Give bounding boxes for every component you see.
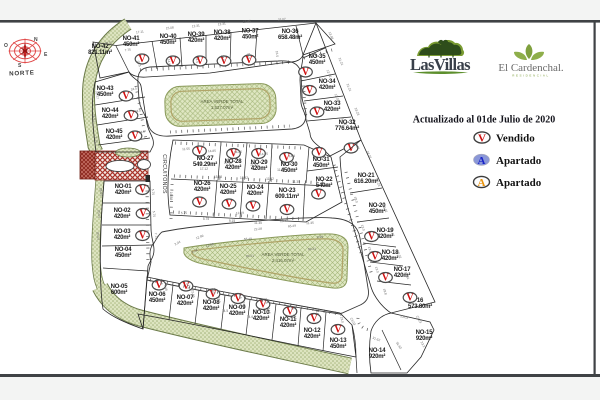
svg-text:14.5: 14.5: [167, 59, 172, 66]
svg-text:V: V: [196, 146, 204, 157]
svg-text:776.64m²: 776.64m²: [335, 125, 359, 132]
svg-text:450m²: 450m²: [313, 162, 330, 169]
svg-text:NORTE: NORTE: [9, 69, 35, 77]
svg-text:V: V: [315, 148, 323, 159]
svg-text:16.88: 16.88: [169, 192, 173, 201]
svg-text:24.57: 24.57: [92, 114, 97, 123]
svg-text:9.98: 9.98: [317, 235, 324, 239]
svg-text:821.11m²: 821.11m²: [88, 49, 112, 56]
svg-text:14.3: 14.3: [289, 154, 296, 158]
svg-text:A: A: [478, 177, 486, 189]
svg-text:540m²: 540m²: [316, 182, 333, 189]
svg-text:N: N: [34, 37, 38, 43]
svg-text:920m²: 920m²: [369, 353, 386, 360]
svg-text:V: V: [406, 293, 414, 304]
svg-text:420m²: 420m²: [220, 189, 237, 196]
svg-text:420m²: 420m²: [194, 186, 211, 193]
svg-text:450m²: 450m²: [369, 208, 386, 215]
svg-text:V: V: [122, 91, 130, 102]
svg-text:420m²: 420m²: [114, 234, 131, 241]
svg-text:450m²: 450m²: [242, 34, 259, 41]
svg-text:65.49: 65.49: [288, 224, 297, 229]
svg-text:V: V: [249, 201, 257, 212]
svg-text:V: V: [315, 189, 323, 200]
svg-text:2,416.07m²: 2,416.07m²: [272, 258, 295, 263]
svg-text:600m²: 600m²: [111, 289, 128, 296]
svg-text:15.92: 15.92: [240, 176, 248, 180]
svg-text:12.99: 12.99: [236, 211, 244, 216]
svg-text:V: V: [196, 197, 204, 208]
svg-text:Apartado: Apartado: [496, 155, 542, 167]
svg-text:11.35: 11.35: [306, 221, 314, 225]
svg-text:420m²: 420m²: [382, 255, 399, 262]
svg-text:11.35: 11.35: [277, 168, 285, 172]
svg-text:420m²: 420m²: [114, 213, 131, 220]
svg-text:V: V: [371, 252, 379, 263]
svg-text:14.85: 14.85: [208, 149, 216, 153]
svg-text:17.12: 17.12: [224, 161, 232, 165]
svg-text:22.28: 22.28: [254, 227, 263, 232]
svg-text:420m²: 420m²: [229, 310, 246, 317]
svg-text:658.48m²: 658.48m²: [278, 34, 302, 41]
svg-text:El Cardenchal.: El Cardenchal.: [498, 62, 564, 74]
svg-text:V: V: [306, 86, 314, 97]
svg-text:420m²: 420m²: [225, 164, 242, 171]
svg-text:AREA VERDE TOTAL: AREA VERDE TOTAL: [201, 99, 245, 104]
svg-text:V: V: [368, 232, 376, 243]
svg-text:Actualizado al 01de Julio de: Actualizado al 01de Julio de 2020: [413, 115, 556, 126]
svg-text:15.47: 15.47: [280, 219, 288, 223]
svg-text:7.75: 7.75: [154, 233, 159, 240]
svg-text:420m²: 420m²: [253, 315, 270, 322]
svg-text:16.5: 16.5: [275, 51, 280, 58]
svg-text:LasVillas: LasVillas: [410, 55, 471, 74]
svg-text:11.92: 11.92: [266, 177, 274, 181]
svg-text:420m²: 420m²: [203, 305, 220, 312]
svg-text:RESIDENCIAL: RESIDENCIAL: [512, 74, 550, 78]
svg-text:31.77: 31.77: [95, 91, 100, 100]
svg-text:420m²: 420m²: [304, 333, 321, 340]
svg-text:Vendido: Vendido: [496, 133, 535, 145]
svg-text:15.88: 15.88: [214, 175, 222, 179]
svg-text:17.12: 17.12: [200, 167, 208, 171]
svg-text:V: V: [310, 314, 318, 325]
svg-text:V: V: [225, 199, 233, 210]
svg-text:11.55: 11.55: [182, 147, 190, 151]
svg-text:14.85: 14.85: [260, 152, 268, 156]
svg-text:1,527.07m²: 1,527.07m²: [211, 105, 234, 110]
svg-text:14.5: 14.5: [247, 53, 252, 60]
svg-text:V: V: [302, 67, 310, 78]
svg-text:V: V: [347, 143, 355, 154]
svg-text:420m²: 420m²: [214, 35, 231, 42]
svg-text:11.35: 11.35: [292, 180, 300, 184]
svg-text:5.75: 5.75: [181, 211, 188, 215]
svg-text:74.5: 74.5: [222, 309, 228, 313]
svg-text:74.6: 74.6: [247, 315, 253, 319]
svg-text:420m²: 420m²: [280, 322, 297, 329]
svg-text:450m²: 450m²: [160, 39, 177, 46]
svg-text:5.75: 5.75: [152, 211, 157, 218]
svg-text:420m²: 420m²: [177, 300, 194, 307]
svg-text:14.5: 14.5: [221, 55, 226, 62]
svg-text:7.75: 7.75: [94, 137, 99, 144]
svg-text:20.04: 20.04: [97, 210, 102, 219]
svg-text:83.21: 83.21: [308, 247, 316, 252]
svg-text:450m²: 450m²: [330, 343, 347, 350]
svg-text:14.5: 14.5: [195, 57, 200, 64]
svg-text:420m²: 420m²: [106, 134, 123, 141]
svg-text:11.35: 11.35: [254, 221, 262, 225]
svg-text:14.85: 14.85: [234, 150, 242, 154]
svg-text:AREA VERDE TOTAL: AREA VERDE TOTAL: [262, 252, 306, 257]
svg-text:420m²: 420m²: [324, 106, 341, 113]
svg-text:450m²: 450m²: [115, 252, 132, 259]
svg-text:V: V: [313, 107, 321, 118]
svg-text:55.49: 55.49: [244, 237, 252, 242]
svg-text:28.04: 28.04: [99, 188, 104, 197]
svg-text:11.85: 11.85: [250, 163, 258, 167]
svg-text:V: V: [139, 231, 147, 242]
svg-text:CIRCUITONOS: CIRCUITONOS: [161, 154, 167, 194]
svg-text:573.80m²: 573.80m²: [408, 303, 432, 310]
svg-text:420m²: 420m²: [188, 37, 205, 44]
svg-text:420m²: 420m²: [102, 113, 119, 120]
svg-text:9.15: 9.15: [229, 219, 235, 223]
svg-text:O: O: [4, 43, 8, 49]
svg-text:Apartado: Apartado: [496, 177, 542, 189]
svg-text:V: V: [334, 325, 342, 336]
svg-text:5.75: 5.75: [151, 189, 156, 196]
svg-text:420m²: 420m²: [319, 84, 336, 91]
svg-text:V: V: [139, 185, 147, 196]
svg-text:420m²: 420m²: [115, 189, 132, 196]
svg-text:5.75: 5.75: [203, 217, 209, 221]
svg-text:83.21: 83.21: [246, 254, 254, 259]
svg-text:A: A: [478, 155, 486, 167]
svg-text:450m²: 450m²: [309, 59, 326, 66]
svg-text:V: V: [283, 205, 291, 216]
svg-text:450m²: 450m²: [123, 41, 140, 48]
svg-text:V: V: [478, 133, 486, 145]
svg-text:450m²: 450m²: [149, 297, 166, 304]
svg-text:V: V: [382, 273, 390, 284]
svg-text:420m²: 420m²: [247, 190, 264, 197]
svg-text:20.04: 20.04: [96, 232, 101, 241]
svg-text:609.11m²: 609.11m²: [275, 193, 299, 200]
